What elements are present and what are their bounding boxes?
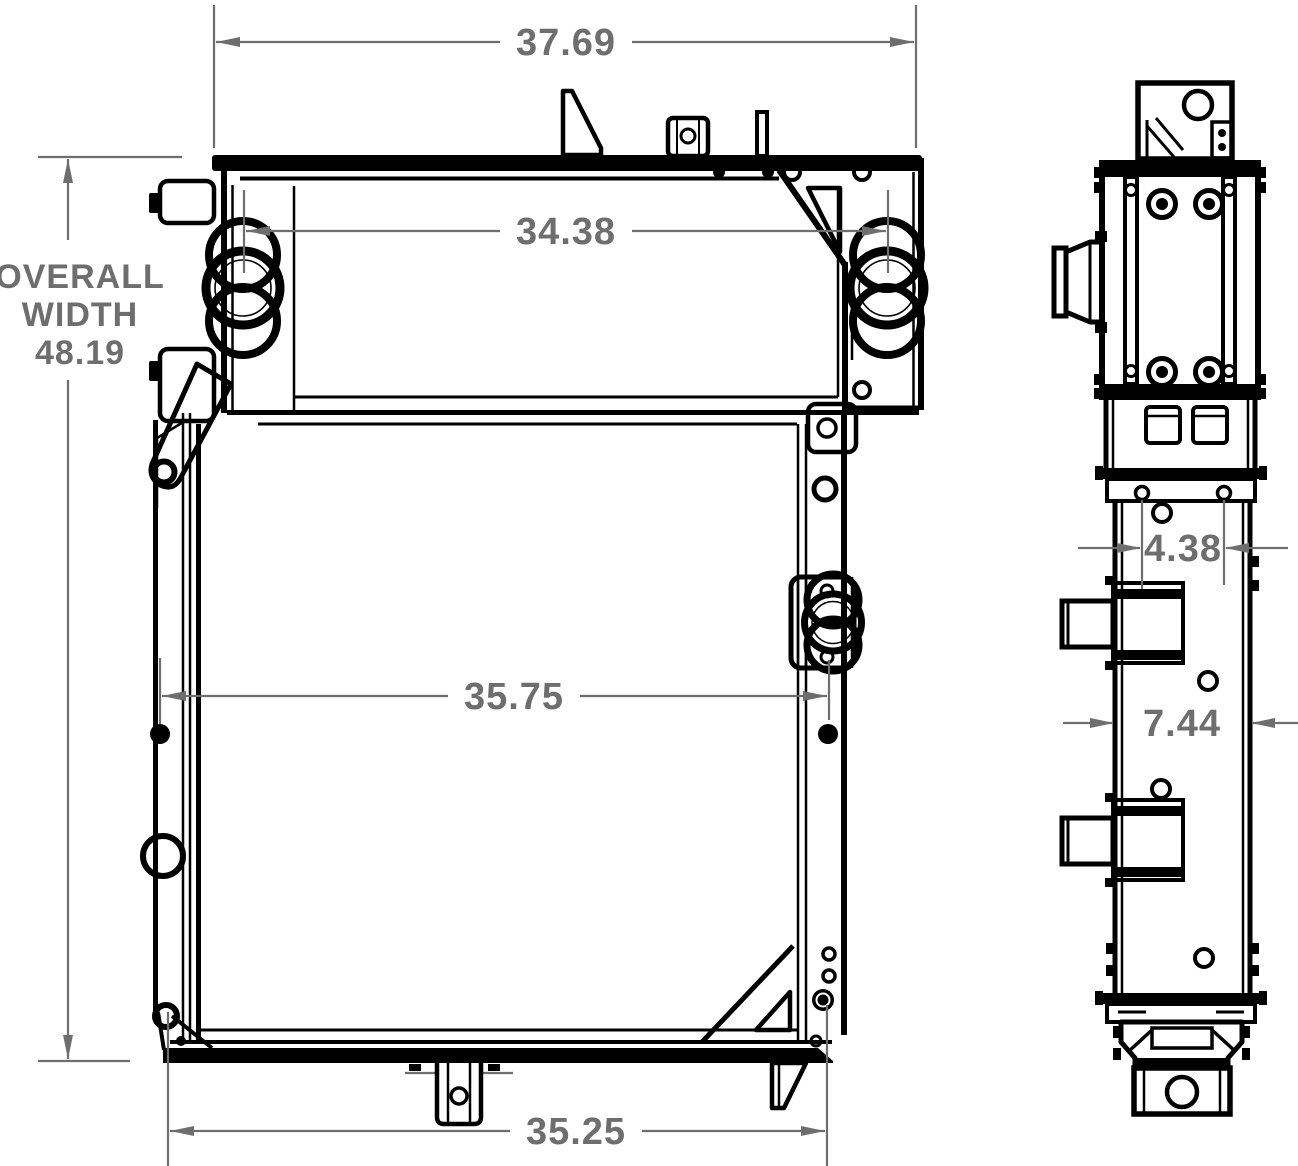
dim-value-mounting-width: 35.25 bbox=[526, 1111, 626, 1153]
corner-rivet bbox=[812, 989, 834, 1011]
front-top-brackets bbox=[563, 91, 767, 156]
dim-value-overall-depth: 7.44 bbox=[1143, 703, 1221, 745]
frame-hole bbox=[143, 836, 183, 876]
tank-top-bar bbox=[212, 155, 922, 171]
side-core bbox=[1106, 501, 1259, 993]
dim-port-center-distance: 34.38 bbox=[244, 190, 888, 273]
clamp-hole bbox=[681, 129, 695, 143]
dim-value-core-width: 35.75 bbox=[464, 676, 564, 718]
top-gusset-bracket bbox=[563, 91, 601, 155]
dim-core-width: 35.75 bbox=[160, 658, 829, 724]
bracket-hole bbox=[451, 1088, 467, 1104]
frame-rivet bbox=[150, 724, 170, 744]
tank-left-tab bbox=[160, 181, 214, 223]
front-top-tank bbox=[149, 155, 922, 424]
radiator-drawing: 37.69 34.38 OVERALL WIDTH 48.19 bbox=[0, 0, 1298, 1166]
bracket-hole bbox=[1167, 1077, 1197, 1107]
dim-overall-depth: 7.44 bbox=[1063, 703, 1298, 745]
flange-hole bbox=[1136, 487, 1149, 500]
frame-rivet bbox=[818, 724, 838, 744]
bottom-gusset-cutout bbox=[756, 992, 790, 1030]
dim-value-top-width: 37.69 bbox=[516, 22, 616, 64]
front-tank-edges bbox=[224, 171, 852, 413]
side-neck bbox=[1095, 397, 1267, 501]
technical-drawing-page: 37.69 34.38 OVERALL WIDTH 48.19 bbox=[0, 0, 1298, 1166]
flange-hole bbox=[1218, 487, 1231, 500]
tank-corner-gusset-edge bbox=[779, 170, 845, 265]
frame-bolt bbox=[814, 478, 836, 500]
dim-value-fitting-offset: 4.38 bbox=[1144, 528, 1222, 570]
top-post bbox=[757, 112, 767, 156]
dim-label-overall-1: OVERALL bbox=[0, 258, 165, 296]
side-bottom-tank bbox=[1095, 991, 1267, 1068]
front-mid-right-port bbox=[791, 574, 862, 671]
bottom-foot bbox=[772, 1063, 806, 1108]
bracket-hole bbox=[1184, 91, 1212, 119]
bottom-bar bbox=[163, 1048, 833, 1063]
front-bottom-assembly bbox=[155, 946, 835, 1124]
bottom-center-bracket bbox=[437, 1063, 481, 1124]
side-bottom-bracket bbox=[1134, 1068, 1230, 1114]
side-top-tank bbox=[1094, 163, 1266, 399]
dim-value-port-distance: 34.38 bbox=[516, 211, 616, 253]
tab-nub bbox=[149, 193, 162, 213]
side-view bbox=[1054, 83, 1267, 1114]
dim-fitting-offset: 4.38 bbox=[1078, 500, 1288, 589]
dim-label-overall-2: WIDTH bbox=[22, 296, 138, 334]
tank-bolts bbox=[1149, 191, 1223, 386]
dim-value-overall-width: 48.19 bbox=[35, 334, 125, 372]
top-clamp-bracket bbox=[668, 118, 708, 156]
side-top-bracket bbox=[1138, 83, 1232, 159]
gusset-bolt bbox=[854, 382, 870, 398]
tab-nub bbox=[149, 361, 162, 381]
